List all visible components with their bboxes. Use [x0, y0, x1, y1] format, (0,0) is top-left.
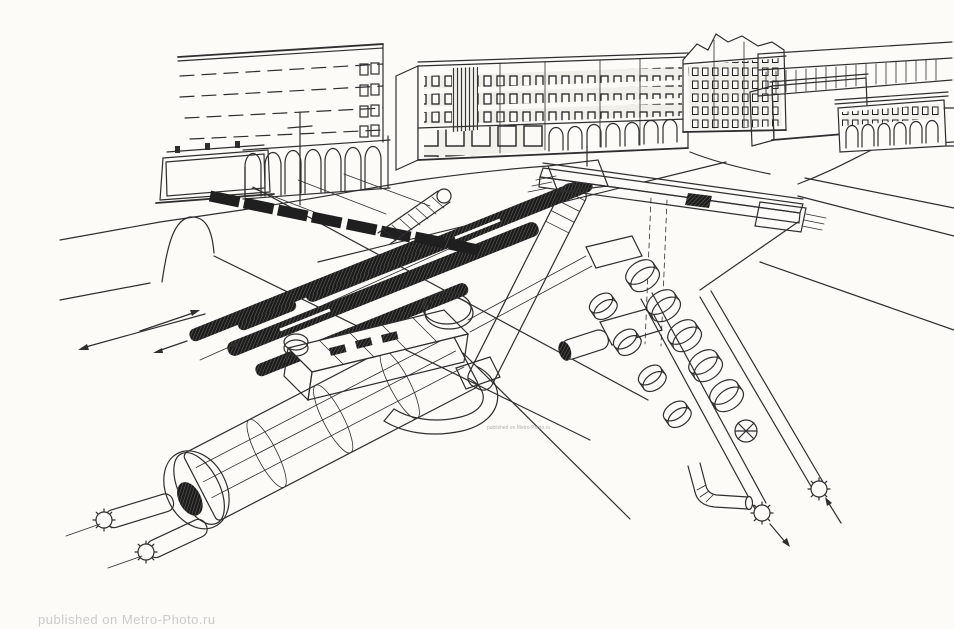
- lining-ring: [660, 397, 695, 432]
- arrow-southeast-out: [770, 524, 790, 547]
- station-hall: [66, 316, 481, 568]
- running-tunnel-west-1: [103, 492, 175, 530]
- loop-passage: [384, 357, 500, 434]
- lining-ring: [610, 325, 645, 360]
- lining-ring: [621, 255, 664, 297]
- drawing-canvas: published on Metro-Photo.ru published on…: [0, 0, 954, 629]
- tiny-watermark: published on Metro-Photo.ru: [487, 425, 550, 431]
- tunnel-stub: [556, 328, 611, 363]
- lining-ring: [684, 345, 727, 387]
- arcade: [243, 136, 390, 199]
- metro-station-cutaway-drawing: published on Metro-Photo.ru: [0, 0, 954, 629]
- arrow-southeast-in: [825, 497, 841, 523]
- center-building-block: [396, 53, 688, 170]
- lining-ring: [705, 375, 748, 417]
- service-chamber: [586, 236, 642, 268]
- arrow-west-long: [78, 314, 205, 350]
- corner-building: [683, 34, 786, 132]
- facade-windows: [360, 63, 379, 137]
- tunnel-face-marker: [93, 509, 115, 531]
- lamp-post: [288, 112, 312, 205]
- left-facade-building: [178, 44, 390, 205]
- right-arcade-building: [835, 92, 954, 152]
- arrow-east-short: [140, 310, 200, 331]
- background-low-building: [758, 42, 952, 96]
- portal-opening: [172, 478, 208, 520]
- lining-ring: [635, 361, 670, 396]
- east-tunnel-cluster: [556, 236, 830, 524]
- shaft-dashed-line: [661, 200, 667, 346]
- pedestrian-underpass: [528, 146, 826, 346]
- lining-ring: [586, 289, 621, 324]
- arrow-west-short: [153, 341, 187, 353]
- ventilation-shaft-section: [735, 420, 757, 442]
- watermark: published on Metro-Photo.ru: [38, 612, 216, 627]
- tunnel-face-marker: [135, 541, 157, 563]
- escalator-tunnel: [378, 180, 590, 393]
- lining-ring: [642, 285, 685, 327]
